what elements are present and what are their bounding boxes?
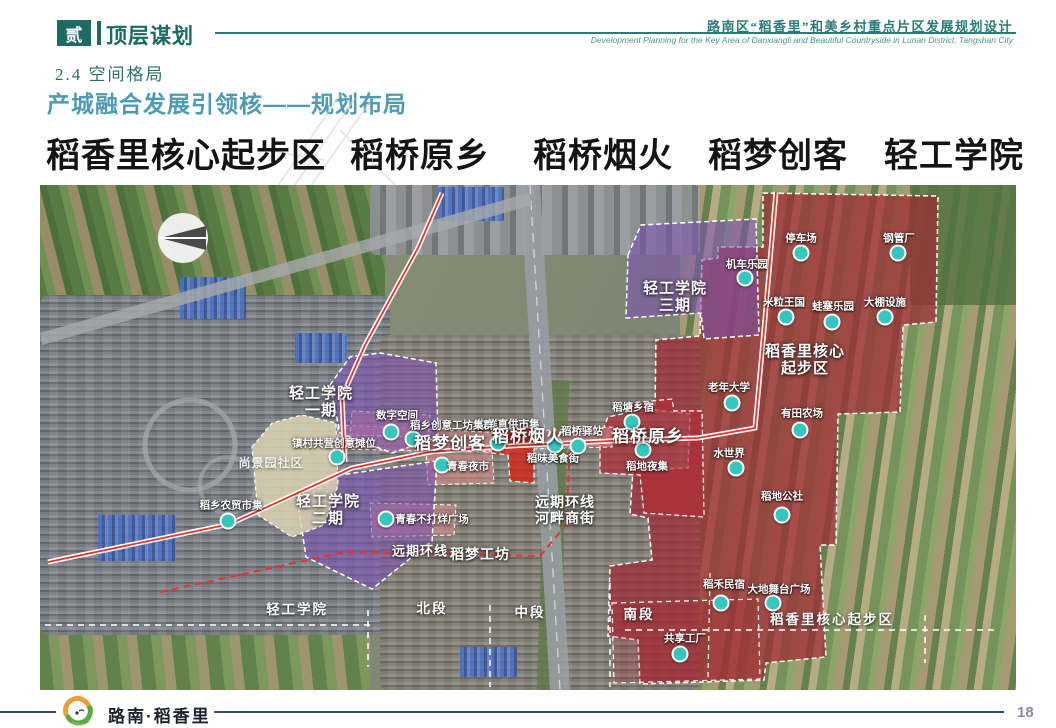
poi-marker-label: 稻乡农贸市集 xyxy=(200,498,263,513)
zone-title-chuangke: 稻梦创客 xyxy=(708,128,848,177)
poi-marker-label: 稻地公社 xyxy=(761,489,803,504)
poi-marker-label: 稻乡创意工坊集群 xyxy=(410,418,494,433)
poi-marker-dot xyxy=(793,245,810,262)
poi-marker-dot xyxy=(329,449,346,466)
footer-rule-right xyxy=(214,711,1004,713)
section-label: 轻工学院 xyxy=(266,598,328,618)
poi-marker-label: 老年大学 xyxy=(708,380,750,395)
zone-label: 轻工学院 二期 xyxy=(296,493,360,528)
section-title-divider xyxy=(97,21,101,45)
poi-marker-label: 机车乐园 xyxy=(726,257,768,272)
page-number: 18 xyxy=(1017,704,1034,721)
zone-label: 远期环线 xyxy=(392,545,448,560)
map-annotations: 停车场机车乐园钢管厂米粒王国蛙塞乐园大棚设施老年大学有田农场水世界稻地公社稻禾民… xyxy=(40,185,1016,690)
section-label: 南段 xyxy=(624,603,655,623)
zone-label: 稻桥烟火 xyxy=(492,427,564,447)
poi-marker-dot xyxy=(378,511,395,528)
poi-marker-dot xyxy=(728,460,745,477)
document-title-en: Development Planning for the Key Area of… xyxy=(591,35,1013,45)
poi-marker-dot xyxy=(724,395,741,412)
poi-marker-dot xyxy=(570,438,587,455)
poi-marker-label: 共享工厂 xyxy=(664,631,706,646)
poi-marker-label: 大地舞台广场 xyxy=(748,582,811,597)
planning-map: 停车场机车乐园钢管厂米粒王国蛙塞乐园大棚设施老年大学有田农场水世界稻地公社稻禾民… xyxy=(40,185,1016,690)
poi-marker-dot xyxy=(672,646,689,663)
zone-title-yuanxiang: 稻桥原乡 xyxy=(350,128,490,177)
zone-title-core: 稻香里核心起步区 xyxy=(46,128,326,177)
footer-logo-text: 路南·稻香里 xyxy=(108,702,211,727)
poi-marker-label: 稻地夜集 xyxy=(626,459,668,474)
poi-marker-dot xyxy=(824,314,841,331)
poi-marker-label: 镇村共营创意摊位 xyxy=(292,436,376,451)
zone-label: 稻梦创客 xyxy=(414,434,486,454)
section-label: 中段 xyxy=(515,601,546,621)
poi-marker-dot xyxy=(774,507,791,524)
document-title-cn: 路南区“稻香里”和美乡村重点片区发展规划设计 xyxy=(707,16,1013,35)
section-label: 北段 xyxy=(417,597,448,617)
zone-label: 轻工学院 一期 xyxy=(289,385,353,420)
zone-label: 稻香里核心 起步区 xyxy=(765,343,845,378)
poi-marker-label: 青春不打烊广场 xyxy=(395,512,469,527)
section-label: 稻香里核心起步区 xyxy=(770,608,894,628)
poi-marker-dot xyxy=(383,424,400,441)
poi-marker-label: 青春夜市 xyxy=(447,459,489,474)
zone-title-xueyuan: 轻工学院 xyxy=(884,128,1024,177)
poi-marker-label: 蛙塞乐园 xyxy=(812,299,854,314)
poi-marker-label: 稻禾民宿 xyxy=(703,577,745,592)
poi-marker-dot xyxy=(792,422,809,439)
poi-marker-dot xyxy=(737,270,754,287)
poi-marker-dot xyxy=(713,595,730,612)
subsection-number: 2.4 空间格局 xyxy=(55,60,165,85)
poi-marker-label: 水世界 xyxy=(713,446,745,461)
zone-label: 尚景园社区 xyxy=(238,457,303,471)
poi-marker-dot xyxy=(220,513,237,530)
poi-marker-label: 稻塘乡宿 xyxy=(612,400,654,415)
zone-label: 稻梦工坊 xyxy=(450,546,510,562)
poi-marker-label: 稻桥驿站 xyxy=(561,424,603,439)
poi-marker-dot xyxy=(890,245,907,262)
poi-marker-label: 钢管厂 xyxy=(883,231,915,246)
zone-title-yanhuo: 稻桥烟火 xyxy=(533,128,673,177)
zone-label: 稻桥原乡 xyxy=(612,427,684,447)
daoxiangli-logo-icon xyxy=(62,696,96,728)
section-title: 顶层谋划 xyxy=(106,20,194,50)
poi-marker-dot xyxy=(877,309,894,326)
footer-rule-left xyxy=(0,711,56,713)
poi-marker-label: 大棚设施 xyxy=(864,295,906,310)
poi-marker-label: 米粒王国 xyxy=(763,295,805,310)
poi-marker-label: 有田农场 xyxy=(781,406,823,421)
poi-marker-label: 停车场 xyxy=(785,231,817,246)
zone-label: 轻工学院 三期 xyxy=(643,280,707,315)
poi-marker-dot xyxy=(778,309,795,326)
poi-marker-label: 稻味美食街 xyxy=(527,451,580,466)
section-number-badge: 贰 xyxy=(57,20,91,46)
zone-label: 远期环线 河畔商街 xyxy=(535,494,595,526)
